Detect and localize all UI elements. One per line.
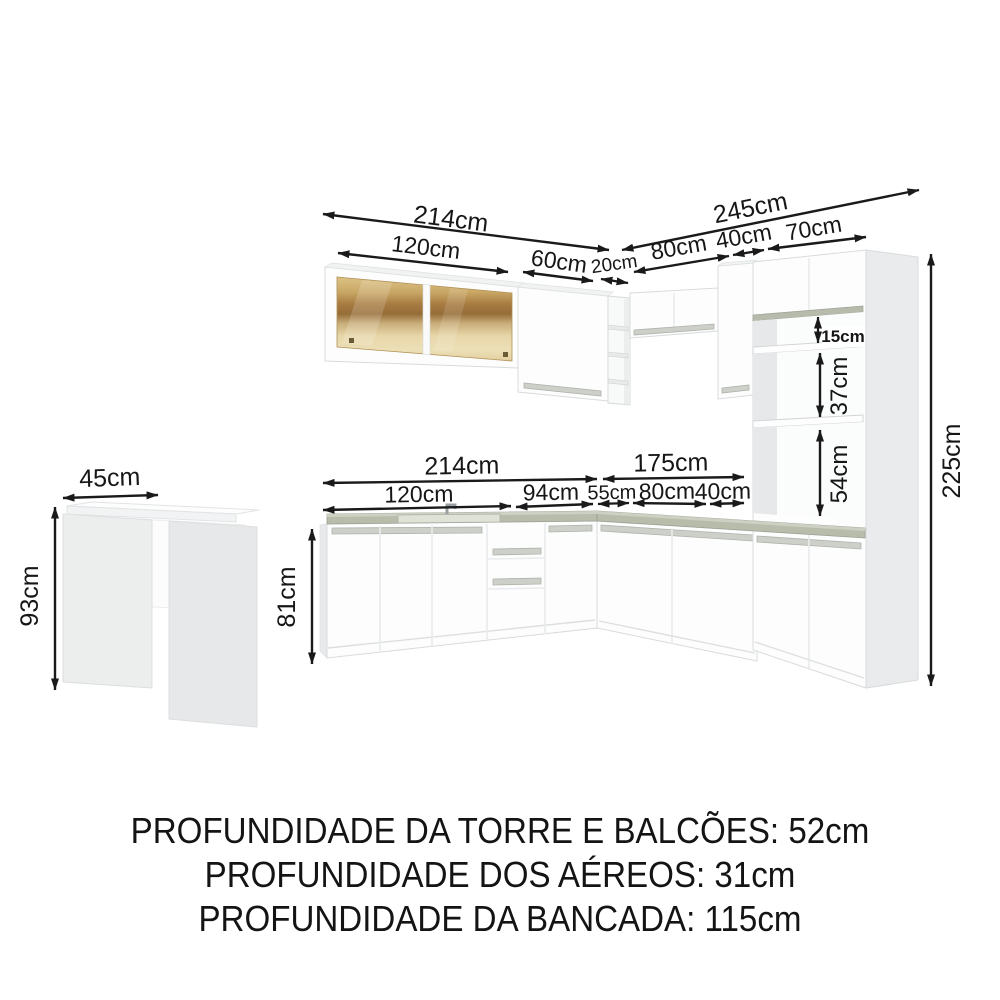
base-left-handle [549, 525, 592, 532]
table-left-leg [63, 514, 152, 688]
tower-side [866, 250, 918, 688]
dim-total-height: 225cm [938, 423, 966, 498]
dim-counter-sub-3: 55cm [587, 482, 636, 505]
dim-right-aereo: 80cm [649, 229, 709, 264]
dim-counter-left-total: 214cm [424, 451, 500, 480]
drawer-handle [493, 578, 541, 585]
dimension-arrows-counter: 214cm 175cm 120cm 94cm 55cm 80cm 40cm [323, 448, 751, 510]
dim-corner-shelf: 20cm [590, 251, 639, 278]
dim-arrow-corner-shelf [601, 279, 628, 283]
bar-table [63, 502, 259, 727]
base-left-side-edge [320, 524, 327, 658]
product-dimension-image: 214cm 245cm 120cm 60cm 20cm 80cm 40cm 70… [0, 0, 1000, 1000]
tower-niche-15-shadow [753, 319, 777, 347]
drawer-divider [487, 588, 545, 589]
tower-niche-54-shadow [753, 427, 777, 515]
tower-niche-37-shadow [753, 352, 777, 421]
dim-arrow-table-depth [63, 495, 158, 498]
dim-counter-sub-4: 80cm [639, 478, 696, 505]
dim-niche-54: 54cm [826, 445, 853, 504]
drawer-handle [493, 548, 541, 555]
base-right-doors [597, 521, 757, 661]
glass-door-knob [503, 352, 508, 357]
dim-counter-right-total: 175cm [633, 448, 709, 477]
upper-cabinets-left [325, 263, 630, 405]
dim-arrow-right-cabinet [733, 250, 764, 255]
depth-notes: PROFUNDIDADE DA TORRE E BALCÕES: 52cm PR… [0, 809, 1000, 941]
dim-table-depth: 45cm [79, 463, 141, 493]
glass-door-divider [423, 284, 430, 355]
depth-note-bancada: PROFUNDIDADE DA BANCADA: 115cm [40, 897, 960, 941]
dim-upper-left-total: 214cm [412, 200, 490, 237]
upper-cabinet-40 [718, 263, 753, 399]
dim-niche-37: 37cm [826, 357, 853, 416]
dim-counter-sub-2: 94cm [523, 479, 580, 506]
sink [398, 514, 500, 523]
drawer-divider [487, 558, 545, 559]
base-left-handle [332, 527, 482, 534]
glass-door-knob [349, 338, 354, 343]
table-right-leg [169, 521, 257, 727]
upper-cabinets-right [630, 260, 757, 399]
dim-counter-sub-5: 40cm [695, 478, 752, 505]
depth-note-aereos: PROFUNDIDADE DOS AÉREOS: 31cm [40, 853, 960, 897]
depth-note-tower-balconies: PROFUNDIDADE DA TORRE E BALCÕES: 52cm [40, 809, 960, 853]
dim-table-height: 93cm [16, 565, 44, 626]
base-cabinets [320, 521, 757, 661]
dim-counter-sub-1: 120cm [384, 480, 453, 507]
base-left-doors [327, 521, 597, 658]
dim-base-height: 81cm [273, 566, 301, 627]
corner-shelf-inner-shadow [624, 299, 630, 404]
dim-niche-15: 15cm [821, 327, 864, 346]
